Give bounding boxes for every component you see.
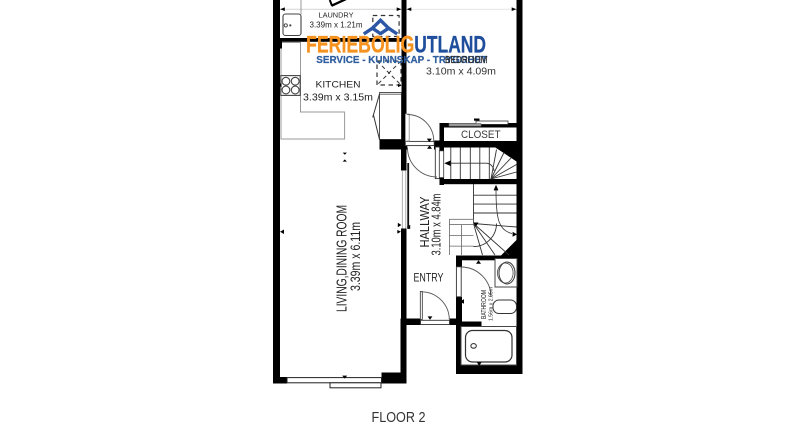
- svg-text:3.10m x 4.09m: 3.10m x 4.09m: [426, 66, 496, 78]
- svg-text:BEDROOM: BEDROOM: [445, 54, 488, 66]
- svg-text:3.39m x 3.15m: 3.39m x 3.15m: [303, 93, 373, 104]
- svg-text:3.39m x 6.11m: 3.39m x 6.11m: [347, 222, 363, 291]
- svg-text:1.56m x 2.95m: 1.56m x 2.95m: [488, 287, 494, 321]
- svg-text:3.39m x 1.21m: 3.39m x 1.21m: [310, 21, 363, 30]
- svg-text:ENTRY: ENTRY: [414, 273, 444, 285]
- svg-text:BATHROOM: BATHROOM: [481, 290, 488, 319]
- svg-text:CLOSET: CLOSET: [461, 129, 501, 141]
- svg-text:FLOOR 2: FLOOR 2: [372, 409, 426, 426]
- svg-text:LAUNDRY: LAUNDRY: [319, 13, 354, 20]
- svg-text:KITCHEN: KITCHEN: [316, 80, 361, 91]
- svg-text:3.10m x 4.84m: 3.10m x 4.84m: [429, 194, 444, 256]
